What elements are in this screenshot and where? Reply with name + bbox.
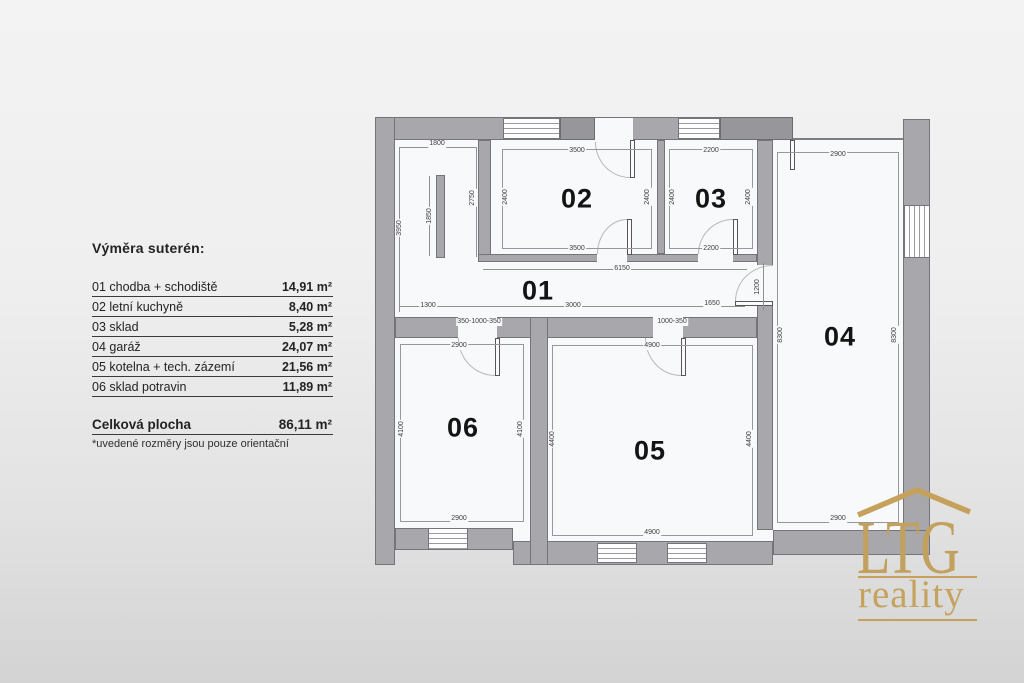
dimension-label: 2400 [669, 188, 677, 206]
dimension-label: 4900 [643, 529, 661, 537]
door-opening-room03-bottom [698, 254, 733, 262]
window-room05-bottom-right [667, 543, 707, 563]
dimension-label: 2400 [644, 188, 652, 206]
dimension-label: 8300 [777, 326, 785, 344]
window-room03-top [678, 118, 720, 139]
dimension-label: 350-1000-350 [456, 318, 502, 326]
wall-corridor-bottom [395, 317, 757, 338]
floor-plan-page: Výměra suterén: 01 chodba + schodiště14,… [0, 0, 1024, 683]
room-label-01: 01 [522, 276, 554, 307]
logo-reality-text: reality [858, 575, 965, 614]
wall-left [375, 117, 395, 565]
wall-pier-left [560, 117, 595, 140]
legend-row: 01 chodba + schodiště14,91 m² [92, 277, 333, 297]
dimension-label: 2400 [745, 188, 753, 206]
legend-rows: 01 chodba + schodiště14,91 m²02 letní ku… [92, 277, 333, 397]
legend-row-label: 05 kotelna + tech. zázemí [92, 360, 235, 374]
wall-pier-right [720, 117, 793, 140]
wall-room01-room02 [478, 140, 491, 262]
dimension-label: 1300 [419, 302, 437, 310]
window-room06-bottom [428, 528, 468, 550]
legend-row-value: 24,07 m² [282, 340, 332, 354]
window-room05-bottom-left [597, 543, 637, 563]
dimension-label: 2200 [702, 245, 720, 253]
legend-row-value: 21,56 m² [282, 360, 332, 374]
dimension-label: 3500 [568, 147, 586, 155]
legend-row-value: 8,40 m² [289, 300, 332, 314]
legend-total-value: 86,11 m² [279, 417, 332, 432]
wall-bottom-room05 [513, 541, 773, 565]
room-label-02: 02 [561, 184, 593, 215]
legend-row: 05 kotelna + tech. zázemí21,56 m² [92, 357, 333, 377]
dimension-label: 4400 [549, 430, 557, 448]
legend-row-label: 02 letní kuchyně [92, 300, 183, 314]
door-opening-room02-bottom [597, 254, 627, 262]
legend-title: Výměra suterén: [92, 240, 333, 256]
dimension-label: 1800 [428, 140, 446, 148]
stair-rail [436, 175, 445, 258]
dimension-label: 1000-350 [656, 318, 688, 326]
dimension-label: 3950 [396, 219, 404, 237]
dimension-label: 2900 [829, 515, 847, 523]
room-label-06: 06 [447, 413, 479, 444]
dimension-label: 2200 [702, 147, 720, 155]
legend-row: 03 sklad5,28 m² [92, 317, 333, 337]
dimension-label: 4100 [398, 420, 406, 438]
dimension-label: 2400 [502, 188, 510, 206]
legend-row-label: 04 garáž [92, 340, 141, 354]
room-label-03: 03 [695, 184, 727, 215]
legend-row: 06 sklad potravin11,89 m² [92, 377, 333, 397]
dimension-label: 6150 [613, 265, 631, 273]
legend-row-value: 5,28 m² [289, 320, 332, 334]
dimension-label: 3500 [568, 245, 586, 253]
window-room02-top [503, 118, 560, 139]
door-opening-room02-top [595, 118, 633, 140]
dimension-label: 1850 [426, 207, 434, 225]
dimension-label: 4100 [517, 420, 525, 438]
room-label-05: 05 [634, 436, 666, 467]
legend-row-label: 03 sklad [92, 320, 139, 334]
legend-row-label: 06 sklad potravin [92, 380, 187, 394]
legend: Výměra suterén: 01 chodba + schodiště14,… [92, 240, 333, 450]
garage-top-line [793, 138, 903, 140]
window-room04-right [904, 205, 930, 258]
dimension-label: 2900 [450, 515, 468, 523]
logo-divider-bottom [858, 619, 977, 621]
dimension-label: 1650 [703, 300, 721, 308]
wall-room03-room04 [757, 140, 773, 530]
legend-row: 02 letní kuchyně8,40 m² [92, 297, 333, 317]
legend-row-value: 14,91 m² [282, 280, 332, 294]
wall-room06-room05 [530, 317, 548, 565]
dimension-label: 4400 [746, 430, 754, 448]
dim-line-1200 [763, 263, 764, 310]
legend-total-row: Celková plocha 86,11 m² [92, 414, 333, 435]
dimension-label: 2750 [469, 189, 477, 207]
room-label-04: 04 [824, 322, 856, 353]
dimension-label: 4900 [643, 342, 661, 350]
dimension-label: 1200 [754, 278, 762, 296]
legend-row-label: 01 chodba + schodiště [92, 280, 217, 294]
legend-total-label: Celková plocha [92, 417, 191, 432]
legend-row: 04 garáž24,07 m² [92, 337, 333, 357]
legend-row-value: 11,89 m² [283, 380, 332, 394]
wall-room02-room03 [657, 140, 665, 254]
legend-note: *uvedené rozměry jsou pouze orientační [92, 438, 333, 450]
dimension-label: 2900 [450, 342, 468, 350]
dimension-label: 2900 [829, 151, 847, 159]
dimension-label: 8300 [891, 326, 899, 344]
ltg-logo: LTG reality [855, 478, 1024, 638]
dimension-label: 3000 [564, 302, 582, 310]
